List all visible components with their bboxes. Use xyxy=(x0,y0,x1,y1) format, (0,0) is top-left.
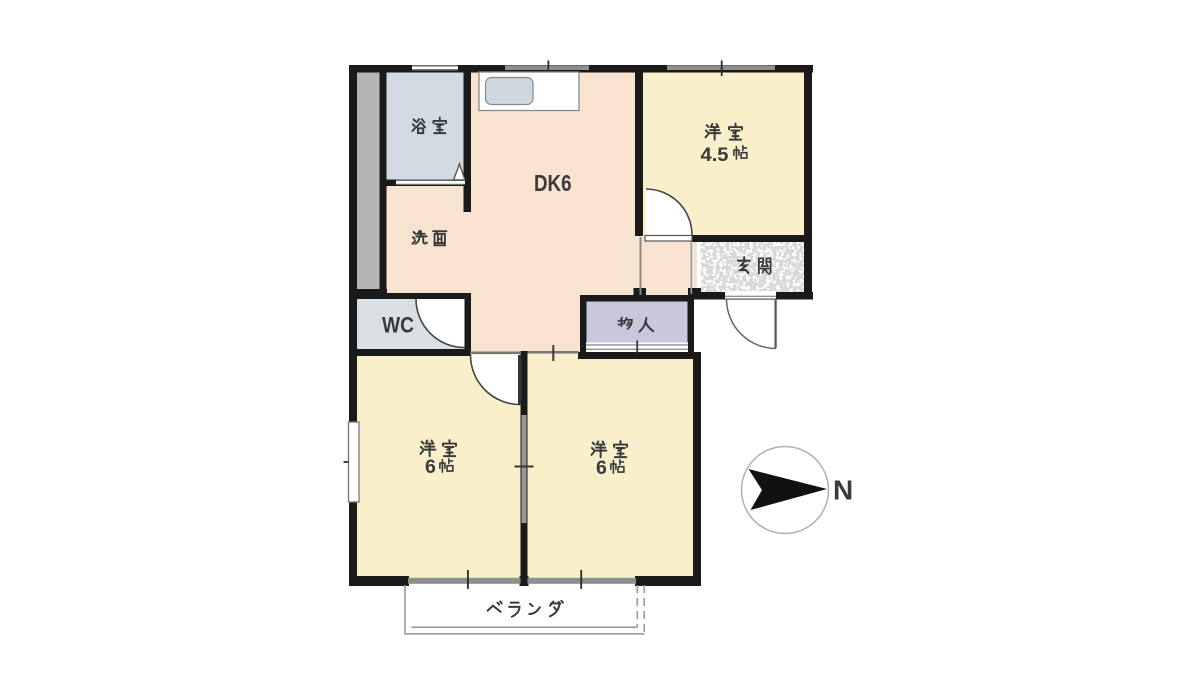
svg-text:4.5: 4.5 xyxy=(701,144,729,166)
svg-text:6: 6 xyxy=(596,457,607,479)
svg-text:DK6: DK6 xyxy=(534,170,572,196)
svg-text:WC: WC xyxy=(382,313,414,338)
svg-text:6: 6 xyxy=(425,456,436,478)
svg-text:N: N xyxy=(833,475,853,506)
